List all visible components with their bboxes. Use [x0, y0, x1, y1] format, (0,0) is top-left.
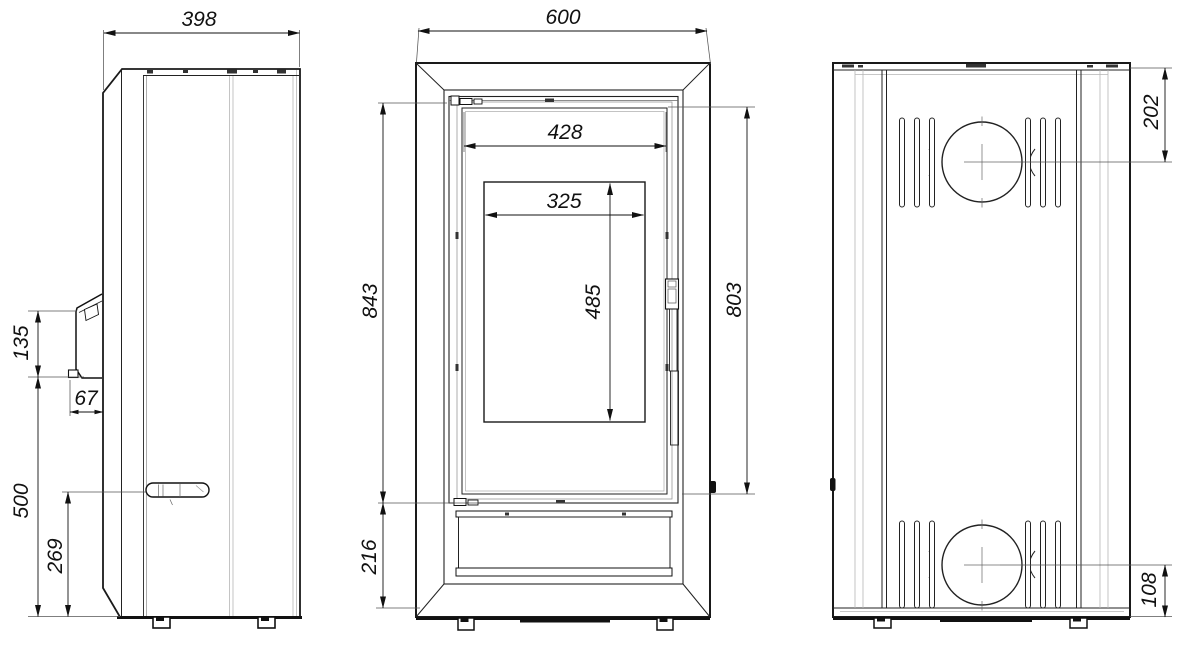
- back-panel: [830, 63, 1130, 619]
- door-latch: [666, 279, 679, 309]
- dim-upper-height: 843: [359, 283, 382, 318]
- technical-drawing-page: 398 135 500 67 269: [0, 0, 1189, 651]
- dim-handle-length: 135: [10, 325, 33, 360]
- dim-opening-height: 485: [582, 284, 605, 319]
- dim-inlet-from-bottom: 108: [1138, 572, 1161, 607]
- dim-glass-height: 803: [723, 282, 746, 317]
- dim-handle-height: 500: [10, 483, 33, 518]
- dim-front-width: 600: [545, 6, 580, 29]
- side-view: 398 135 500 67 269: [10, 8, 302, 628]
- hinge-top: [451, 96, 459, 105]
- dim-flue-from-top: 202: [1140, 94, 1163, 130]
- front-view: 600 428 325 485 843 216 803: [358, 6, 755, 630]
- door-handle-side: [69, 294, 103, 378]
- back-view: 202 108: [830, 63, 1172, 628]
- back-latch-tab: [830, 478, 836, 491]
- dim-opening-width: 325: [546, 190, 581, 213]
- stove-three-view-drawing: 398 135 500 67 269: [0, 0, 1189, 651]
- dim-base-height: 216: [358, 539, 381, 575]
- hinge-bottom: [454, 499, 466, 506]
- back-outline: [833, 63, 1130, 617]
- side-body-outline: [103, 69, 300, 617]
- side-latch-tab: [710, 481, 717, 493]
- dim-handle-offset: 67: [74, 387, 99, 410]
- dim-side-depth: 398: [181, 8, 216, 31]
- dim-glass-width: 428: [547, 121, 582, 144]
- side-body: [103, 69, 302, 628]
- dim-lever-height: 269: [44, 538, 67, 574]
